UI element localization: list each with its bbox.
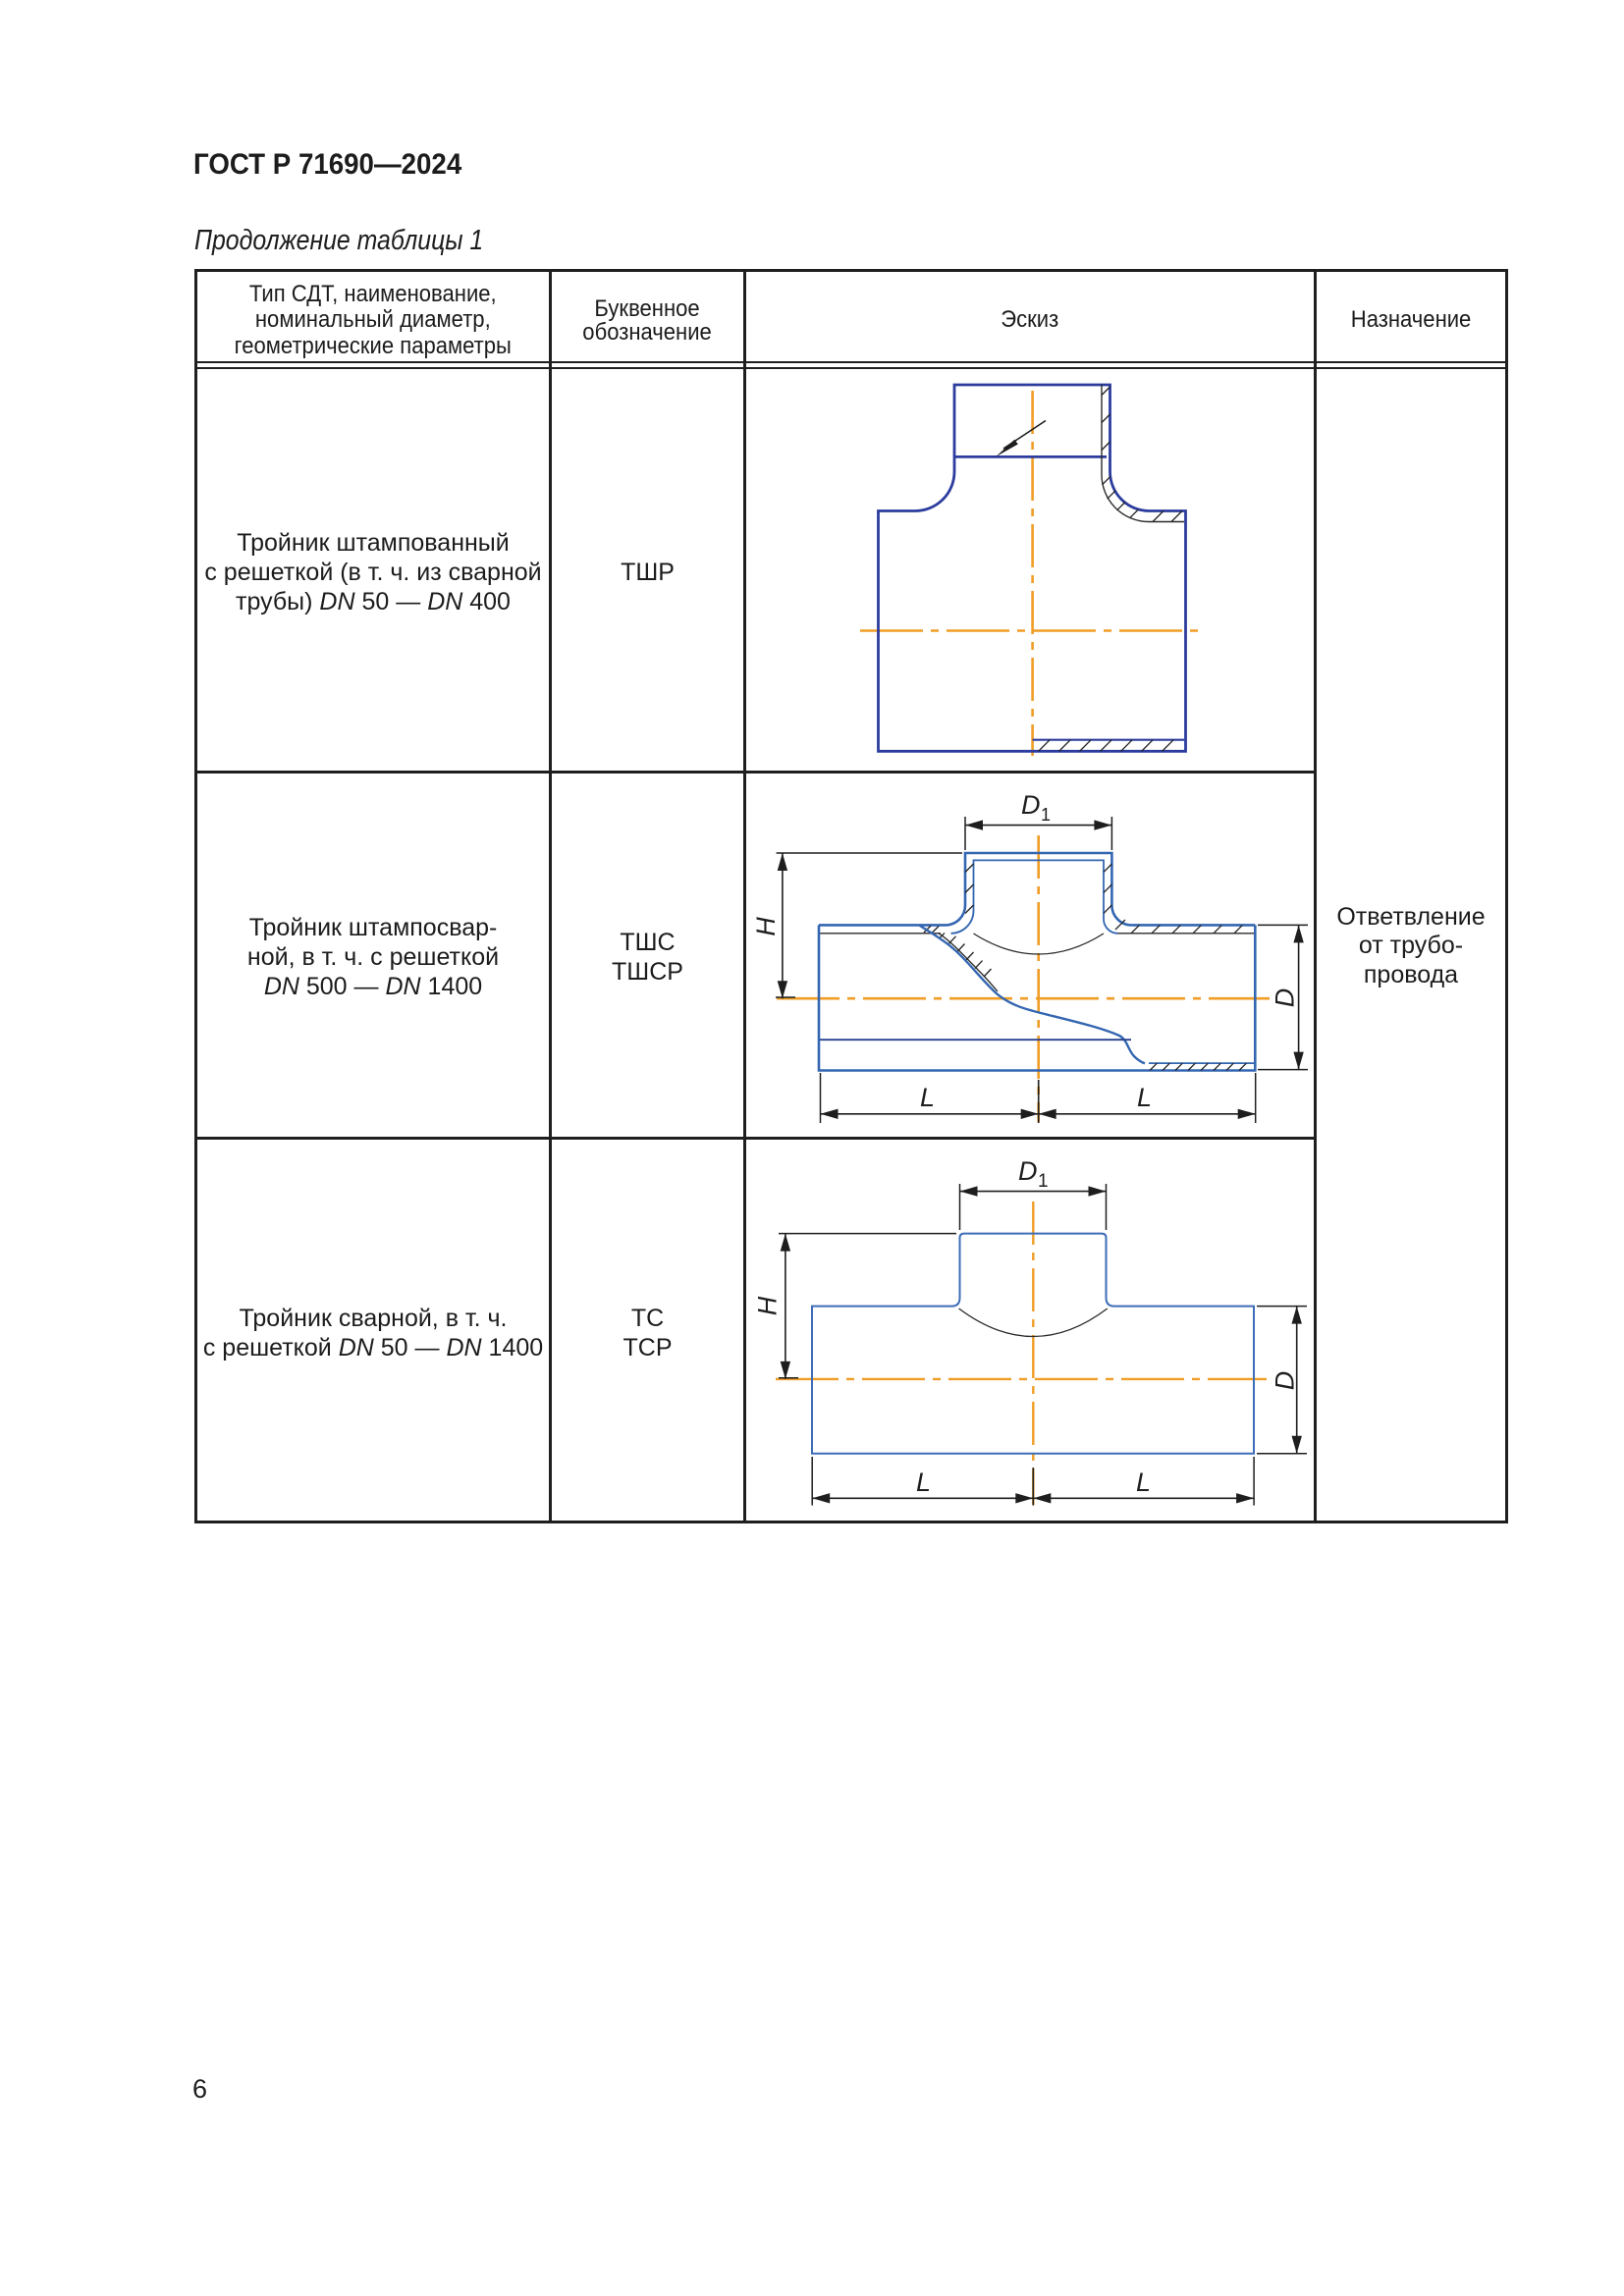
svg-text:L: L	[1137, 1083, 1152, 1112]
svg-text:D: D	[1271, 1371, 1300, 1391]
svg-text:H: H	[753, 1296, 783, 1315]
svg-text:D: D	[1021, 790, 1041, 820]
svg-text:L: L	[916, 1468, 931, 1497]
svg-text:1: 1	[1038, 1171, 1049, 1192]
svg-text:L: L	[920, 1083, 935, 1112]
svg-text:D: D	[1271, 988, 1300, 1008]
svg-text:L: L	[1136, 1468, 1151, 1497]
svg-text:1: 1	[1041, 805, 1051, 825]
svg-text:H: H	[751, 917, 781, 936]
svg-text:D: D	[1018, 1156, 1038, 1186]
